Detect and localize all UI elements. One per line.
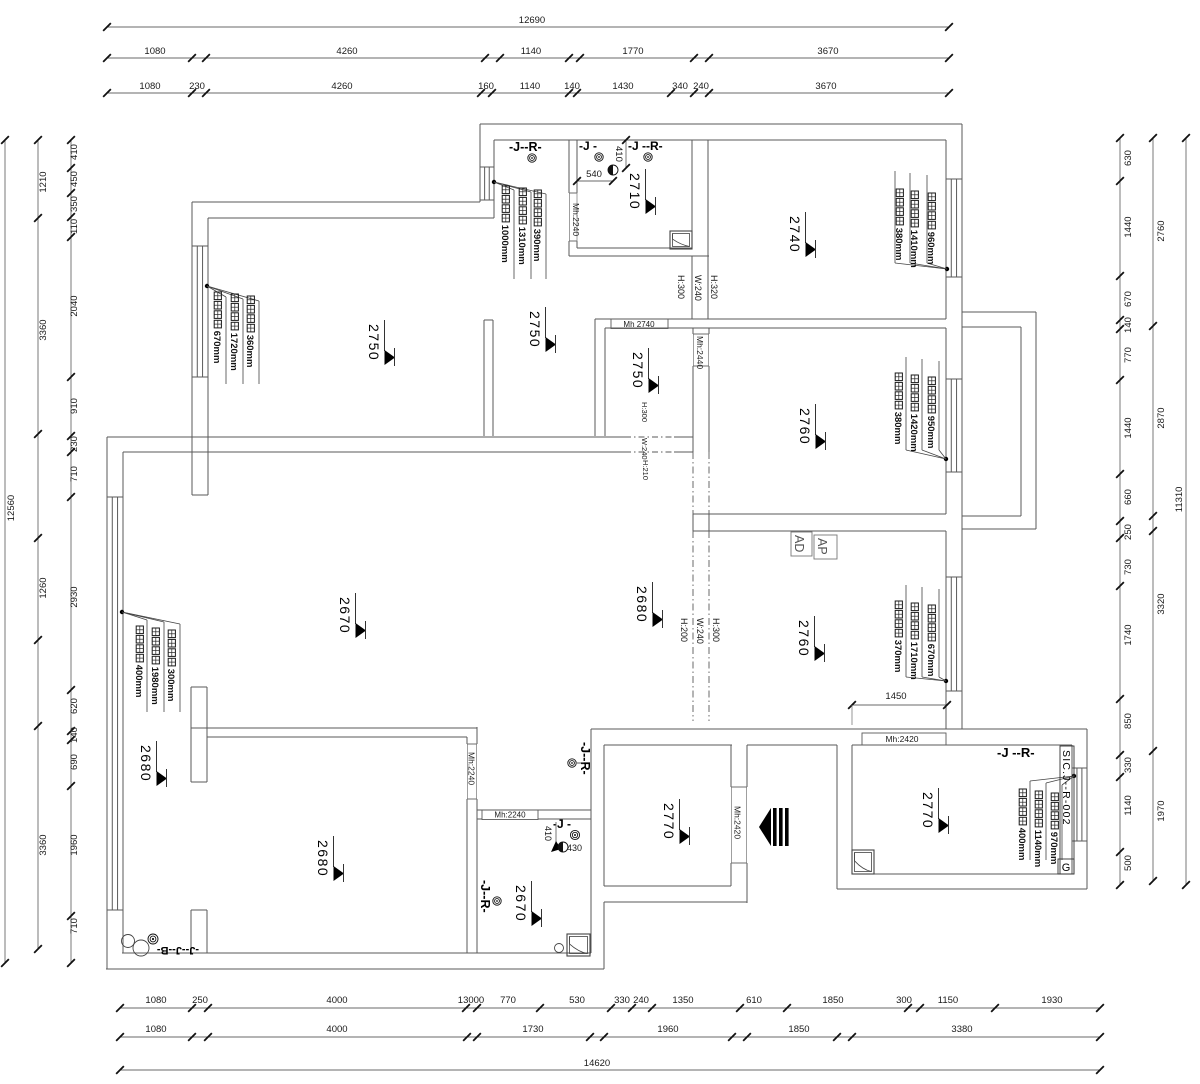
svg-text:2930: 2930 [69, 586, 80, 607]
svg-text:1440: 1440 [1123, 216, 1134, 237]
svg-text:2750: 2750 [527, 311, 543, 348]
svg-text:360mm: 360mm [244, 335, 255, 368]
svg-text:1350: 1350 [672, 995, 693, 1006]
svg-text:400mm: 400mm [1016, 828, 1027, 861]
svg-text:Mh:2240: Mh:2240 [571, 203, 581, 236]
svg-text:670mm: 670mm [211, 331, 222, 364]
svg-text:770: 770 [1123, 347, 1134, 363]
svg-text:3360: 3360 [38, 834, 49, 855]
svg-text:3670: 3670 [817, 46, 838, 57]
svg-text:1150: 1150 [938, 995, 958, 1006]
svg-text:340: 340 [672, 81, 688, 92]
svg-text:W:240: W:240 [640, 438, 649, 460]
svg-text:2760: 2760 [797, 408, 813, 445]
svg-text:410: 410 [543, 826, 553, 841]
svg-text:430: 430 [567, 843, 582, 853]
svg-text:4000: 4000 [326, 995, 347, 1006]
svg-text:300mm: 300mm [165, 669, 176, 702]
svg-text:1140: 1140 [520, 81, 540, 92]
svg-text:450: 450 [69, 171, 80, 187]
svg-text:Mh:2420: Mh:2420 [733, 806, 743, 839]
svg-text:-J --R-: -J --R- [997, 745, 1035, 760]
svg-text:330: 330 [1123, 757, 1134, 773]
svg-text:Mh 2740: Mh 2740 [623, 320, 655, 329]
svg-text:AD: AD [792, 535, 806, 552]
svg-text:4000: 4000 [326, 1024, 347, 1035]
svg-text:2750: 2750 [366, 324, 382, 361]
svg-text:AP: AP [815, 538, 829, 555]
svg-text:670: 670 [1123, 291, 1134, 307]
svg-text:1260: 1260 [38, 577, 49, 598]
svg-text:350: 350 [69, 196, 80, 212]
svg-text:G: G [1062, 862, 1071, 874]
svg-text:500: 500 [1123, 855, 1134, 871]
svg-text:110: 110 [69, 219, 80, 234]
svg-text:SIC.J--R-002: SIC.J--R-002 [1060, 750, 1072, 826]
svg-text:3670: 3670 [815, 81, 836, 92]
svg-text:1930: 1930 [1041, 995, 1062, 1006]
svg-text:-J --R-: -J --R- [628, 139, 663, 153]
svg-text:2760: 2760 [1156, 220, 1167, 241]
svg-text:-J--J--B-: -J--J--B- [157, 944, 199, 956]
svg-text:3360: 3360 [38, 319, 49, 340]
svg-text:620: 620 [69, 698, 80, 714]
svg-text:1850: 1850 [822, 995, 843, 1006]
svg-text:610: 610 [746, 995, 762, 1006]
svg-text:H:300: H:300 [676, 275, 686, 299]
svg-text:1740: 1740 [1123, 624, 1134, 645]
svg-text:1850: 1850 [788, 1024, 809, 1035]
svg-text:970mm: 970mm [1048, 832, 1059, 865]
svg-text:330: 330 [614, 995, 630, 1006]
svg-text:1080: 1080 [145, 995, 166, 1006]
svg-text:Mh:2420: Mh:2420 [885, 734, 918, 744]
svg-text:1440: 1440 [1123, 417, 1134, 438]
svg-text:H:200: H:200 [679, 618, 689, 642]
svg-text:1450: 1450 [885, 691, 906, 702]
svg-text:3320: 3320 [1156, 593, 1167, 614]
svg-text:670mm: 670mm [925, 644, 936, 677]
svg-text:240: 240 [693, 81, 709, 92]
svg-text:12560: 12560 [6, 495, 17, 521]
svg-text:1730: 1730 [522, 1024, 543, 1035]
svg-text:850: 850 [1123, 713, 1134, 729]
svg-text:710: 710 [69, 918, 80, 934]
svg-text:2680: 2680 [315, 840, 331, 877]
svg-text:12690: 12690 [519, 15, 545, 26]
svg-text:410: 410 [69, 144, 80, 160]
svg-text:1080: 1080 [139, 81, 160, 92]
svg-text:H:210: H:210 [641, 460, 650, 480]
svg-text:1720mm: 1720mm [228, 333, 239, 371]
svg-text:710: 710 [69, 466, 80, 482]
svg-text:250: 250 [192, 995, 208, 1006]
svg-text:-J--R-: -J--R- [478, 880, 492, 913]
svg-text:1960: 1960 [657, 1024, 678, 1035]
svg-text:Mh:2440: Mh:2440 [695, 336, 705, 369]
svg-text:950mm: 950mm [925, 416, 936, 449]
svg-text:1080: 1080 [144, 46, 165, 57]
svg-text:660: 660 [1123, 489, 1134, 505]
svg-text:960mm: 960mm [925, 232, 936, 265]
svg-text:1080: 1080 [145, 1024, 166, 1035]
svg-text:2670: 2670 [513, 885, 529, 922]
svg-text:380mm: 380mm [893, 228, 904, 261]
svg-text:300: 300 [896, 995, 912, 1006]
svg-text:2670: 2670 [337, 597, 353, 634]
svg-text:13000: 13000 [458, 995, 484, 1006]
svg-text:1410mm: 1410mm [908, 230, 919, 268]
svg-text:1140mm: 1140mm [1032, 830, 1043, 868]
svg-text:730: 730 [1123, 559, 1134, 575]
svg-text:410: 410 [613, 146, 624, 162]
svg-text:1140: 1140 [1123, 795, 1134, 815]
svg-text:Mh:2240: Mh:2240 [494, 811, 526, 820]
svg-text:-J--R-: -J--R- [509, 140, 542, 154]
svg-text:2740: 2740 [787, 216, 803, 253]
svg-text:H:320: H:320 [709, 275, 719, 299]
svg-text:140: 140 [564, 81, 580, 92]
svg-text:2770: 2770 [920, 792, 936, 829]
svg-text:1710mm: 1710mm [908, 642, 919, 680]
svg-text:2750: 2750 [630, 352, 646, 389]
svg-text:14620: 14620 [584, 1058, 610, 1069]
svg-text:250: 250 [1123, 524, 1134, 540]
svg-text:1310mm: 1310mm [516, 227, 527, 265]
svg-text:W:240: W:240 [695, 618, 705, 644]
svg-text:1770: 1770 [622, 46, 643, 57]
svg-text:Mh:2240: Mh:2240 [467, 752, 477, 785]
svg-text:1000mm: 1000mm [499, 225, 510, 263]
svg-text:1980mm: 1980mm [149, 667, 160, 705]
svg-text:1140: 1140 [521, 46, 541, 57]
svg-text:1970: 1970 [1156, 800, 1167, 821]
svg-text:-J--R-: -J--R- [578, 742, 592, 775]
svg-text:370mm: 370mm [892, 640, 903, 673]
svg-text:H:300: H:300 [711, 618, 721, 642]
svg-text:230: 230 [189, 81, 205, 92]
svg-text:3380: 3380 [951, 1024, 972, 1035]
svg-text:4260: 4260 [331, 81, 352, 92]
svg-text:140: 140 [1123, 317, 1134, 333]
svg-text:530: 530 [569, 995, 585, 1006]
svg-text:2680: 2680 [138, 745, 154, 782]
svg-text:1430: 1430 [612, 81, 633, 92]
svg-text:630: 630 [1123, 150, 1134, 166]
svg-text:11310: 11310 [1174, 487, 1185, 513]
svg-text:230: 230 [69, 436, 80, 452]
svg-text:380mm: 380mm [892, 412, 903, 445]
svg-text:2770: 2770 [661, 803, 677, 840]
svg-text:W:240: W:240 [693, 275, 703, 301]
svg-text:1210: 1210 [38, 171, 49, 192]
svg-text:770: 770 [500, 995, 516, 1006]
svg-text:910: 910 [69, 398, 80, 414]
svg-text:2760: 2760 [796, 620, 812, 657]
svg-text:4260: 4260 [336, 46, 357, 57]
svg-text:140: 140 [69, 727, 80, 743]
svg-text:690: 690 [69, 754, 80, 770]
svg-text:2040: 2040 [69, 295, 80, 316]
svg-text:2680: 2680 [634, 586, 650, 623]
svg-text:-J -: -J - [579, 139, 597, 153]
svg-text:1420mm: 1420mm [908, 414, 919, 452]
svg-text:540: 540 [586, 169, 602, 180]
svg-text:1960: 1960 [69, 834, 80, 855]
svg-text:2710: 2710 [627, 173, 643, 210]
svg-text:160: 160 [478, 81, 494, 92]
svg-text:390mm: 390mm [531, 229, 542, 262]
svg-text:2870: 2870 [1156, 407, 1167, 428]
svg-text:400mm: 400mm [133, 665, 144, 698]
svg-text:H:300: H:300 [640, 402, 649, 422]
svg-text:240: 240 [633, 995, 649, 1006]
